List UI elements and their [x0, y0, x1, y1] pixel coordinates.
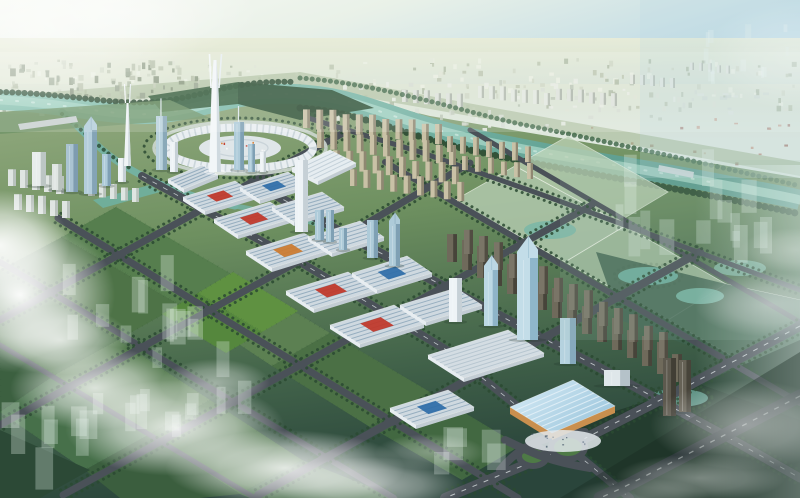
tan-row [321, 129, 324, 148]
dark-row [484, 236, 488, 262]
tan-row [363, 170, 367, 188]
glass-tower [252, 144, 255, 172]
tan-row [439, 162, 443, 182]
ghost-tower [176, 311, 190, 337]
plaza-people [546, 446, 548, 448]
plaza-people [584, 443, 585, 445]
slab-row [125, 188, 128, 201]
plaza-people [531, 434, 533, 435]
glass-tower [344, 228, 347, 250]
glass-tower [492, 270, 498, 326]
plaza-people [562, 439, 564, 440]
tan-row [374, 135, 377, 155]
tan-row [408, 176, 411, 194]
tan-row [486, 141, 490, 157]
dark-row [447, 234, 453, 262]
tan-row [394, 175, 397, 192]
tan-row [518, 162, 520, 177]
dark-row [479, 236, 485, 262]
tan-row [443, 162, 446, 182]
tower [58, 164, 62, 190]
ghost-tower [35, 447, 53, 489]
tan-row [350, 169, 354, 186]
tan-row [514, 162, 518, 177]
plaza-people [545, 435, 547, 437]
glass-tower [331, 210, 334, 242]
slab-row [67, 201, 70, 218]
tan-row [479, 157, 481, 172]
dark-row [499, 242, 503, 270]
tan-row [451, 136, 453, 152]
tan-row [462, 156, 466, 170]
tan-row [501, 162, 505, 176]
ghost-tower [161, 255, 174, 291]
tan-row [473, 137, 477, 155]
tan-row [396, 140, 400, 159]
white-tower [303, 160, 308, 232]
tan-row [423, 140, 427, 161]
tan-row [435, 181, 438, 198]
tan-row [461, 182, 464, 201]
plaza-pavilion [246, 145, 248, 146]
glass-tower [396, 224, 400, 266]
crystal-tower [530, 258, 538, 340]
glass-tower [92, 130, 97, 194]
dark-row [509, 254, 515, 278]
plaza-pavilion [252, 142, 254, 144]
dark-row [469, 230, 473, 254]
tan-row [464, 137, 466, 154]
tan-row [492, 158, 494, 174]
plaza-pavilion [224, 143, 226, 145]
tan-row [516, 142, 518, 160]
tan-row [343, 130, 347, 151]
tan-row [404, 176, 408, 194]
tan-row [330, 130, 334, 150]
tower [175, 142, 178, 172]
plaza-people [582, 441, 584, 443]
tan-row [503, 142, 505, 159]
plaza-people [534, 434, 535, 436]
tan-row [421, 176, 424, 195]
ghost-tower [132, 277, 145, 313]
tan-row [505, 162, 507, 176]
slab-row [114, 184, 117, 199]
slab-row [13, 169, 16, 186]
tan-row [427, 140, 430, 161]
slab-row [8, 169, 13, 186]
tan-row [357, 135, 361, 154]
aerial-city-scene [0, 0, 800, 498]
tan-row [370, 135, 374, 155]
tan-row [399, 157, 403, 177]
tower [40, 152, 46, 186]
tan-row [425, 162, 429, 181]
slab-row [62, 201, 67, 218]
tan-row [499, 142, 503, 159]
tan-row [368, 170, 371, 188]
podium [620, 370, 630, 386]
tan-row [447, 136, 451, 152]
plaza-pavilion [226, 148, 228, 150]
tan-row [448, 181, 451, 199]
tan-row [460, 137, 464, 154]
plaza-people [550, 438, 552, 440]
tan-row [488, 158, 492, 174]
dark-row [544, 266, 548, 294]
ghost-tower [2, 402, 20, 428]
tan-row [381, 171, 384, 190]
plaza-pavilion [261, 150, 263, 152]
plaza-people [562, 444, 564, 445]
tan-row [430, 181, 434, 198]
tan-row [390, 156, 393, 175]
tan-row [334, 130, 337, 150]
tan-row [525, 146, 529, 162]
tan-row [317, 129, 321, 148]
tan-row [416, 161, 419, 179]
tan-row [466, 156, 468, 170]
tan-row [409, 140, 413, 160]
tan-row [417, 176, 421, 195]
tan-row [531, 163, 533, 179]
tan-row [475, 157, 479, 172]
tan-row [490, 141, 492, 157]
plaza-pavilion [221, 143, 223, 145]
tan-row [361, 135, 364, 154]
dark-row [453, 234, 457, 262]
tan-row [383, 135, 387, 156]
glass-tower [374, 220, 378, 258]
tan-row [527, 163, 531, 179]
tan-row [400, 140, 403, 159]
tan-row [452, 167, 456, 185]
tan-row [457, 182, 461, 201]
tan-row [390, 175, 394, 192]
plaza-people [584, 441, 585, 442]
cloud [375, 434, 485, 470]
plaza-people [547, 438, 548, 439]
plaza-pavilion [264, 150, 265, 151]
tan-row [364, 151, 367, 171]
tan-row [377, 171, 381, 190]
tan-row [456, 167, 459, 185]
tan-row [412, 161, 416, 179]
tan-row [354, 169, 357, 186]
tan-row [512, 142, 516, 160]
cloud [160, 359, 270, 407]
tan-row [436, 145, 440, 164]
dark-row [539, 266, 545, 294]
glass-tower [107, 154, 111, 186]
ghost-tower [482, 430, 501, 463]
slab-row [20, 170, 25, 188]
tan-row [348, 130, 351, 151]
dark-row [464, 230, 470, 254]
tan-row [386, 156, 390, 175]
tan-row [444, 181, 448, 199]
tan-row [359, 151, 363, 171]
tan-row [430, 162, 433, 181]
glass-tower [73, 144, 78, 192]
tan-row [414, 140, 417, 160]
city-masterplan-rendering [0, 0, 800, 498]
tower [457, 278, 462, 322]
tan-row [477, 137, 479, 155]
tan-row [453, 145, 456, 165]
slab-row [136, 188, 139, 202]
tan-row [403, 157, 406, 177]
dark-row [554, 278, 560, 302]
slab-row [121, 188, 125, 201]
tan-row [387, 135, 390, 156]
tan-row [373, 156, 377, 174]
plaza-people [566, 437, 567, 438]
tower [264, 152, 266, 172]
tan-row [529, 146, 531, 162]
forecourt-plaza [525, 430, 601, 452]
glass-tower [320, 210, 324, 240]
slab-row [132, 188, 136, 202]
plaza-people [553, 437, 554, 438]
tan-row [440, 145, 443, 164]
